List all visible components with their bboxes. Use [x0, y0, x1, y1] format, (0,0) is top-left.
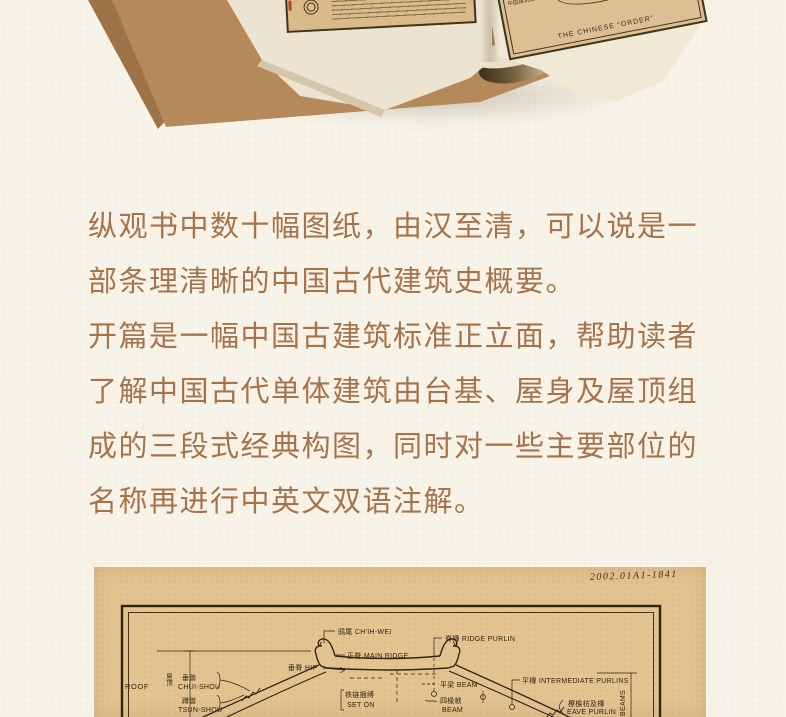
label-tsun-shou-cn: 蹲兽: [182, 696, 197, 705]
label-si-chuan-fu-cn: 四椽栿: [440, 696, 462, 705]
plate-caption-cn: 中国建筑之“ORDER”: [507, 0, 559, 8]
paragraph-line: 开篇是一幅中国古建筑标准正立面，帮助读者: [88, 310, 728, 365]
paragraph-line: 成的三段式经典构图，同时对一些主要部位的: [88, 420, 728, 475]
label-ridge-purlin: 脊槫 RIDGE PURLIN: [445, 634, 515, 643]
blueprint-labels: 鸱尾 CH'IH-WEI 脊槫 RIDGE PURLIN 正脊 MAIN RID…: [125, 627, 629, 716]
label-chui-shou-en: CHUI-SHOU: [178, 684, 220, 691]
label-set-on-cn: 铁链捆缚: [345, 690, 374, 699]
label-main-ridge: 正脊 MAIN RIDGE: [347, 651, 408, 660]
label-eave-purlin-cn: 橑檐枋及槫: [568, 699, 605, 708]
label-chih-wei: 鸱尾 CH'IH-WEI: [338, 627, 392, 636]
label-tsun-shou-en: TSUN-SHOU: [178, 707, 222, 714]
label-roof: ROOF: [125, 682, 149, 691]
article-text: 纵观书中数十幅图纸，由汉至清，可以说是一 部条理清晰的中国古代建筑史概要。 开篇…: [88, 200, 728, 530]
label-ping-liang: 平梁 BEAM: [440, 680, 478, 689]
label-chui-shou-cn: 垂兽: [182, 673, 197, 682]
label-eave-purlin-en: EAVE PURLIN: [567, 709, 616, 716]
paragraph-line: 名称再进行中英文双语注解。: [88, 475, 728, 530]
book-photo[interactable]: 中国建筑之“ORDER” THE CHINESE “ORDER”: [0, 0, 786, 175]
paragraph-line: 纵观书中数十幅图纸，由汉至清，可以说是一: [88, 200, 728, 255]
plate-number: 2002.01A1-1841: [590, 569, 678, 583]
book-gutter-shadow: [480, 0, 500, 62]
paragraph-line: 部条理清晰的中国古代建筑史概要。: [88, 255, 728, 310]
label-hip: 垂脊 HIP: [288, 663, 317, 672]
paragraph-line: 了解中国古代单体建筑由台基、屋身及屋顶组: [88, 365, 728, 420]
label-beams: BEAMS: [620, 690, 627, 716]
label-intermediate-purlins: 平槫 INTERMEDIATE PURLINS: [522, 676, 629, 685]
label-set-on-en: SET ON: [347, 702, 375, 709]
label-roof-cn: 屋顶: [165, 673, 173, 688]
label-si-chuan-fu-en: BEAM: [442, 707, 463, 714]
plate-caption-lines: [331, 0, 466, 23]
red-collation-mark: [288, 1, 292, 11]
plan-ellipse-sketch: [553, 0, 651, 12]
roof-blueprint-image[interactable]: 2002.01A1-1841: [94, 567, 706, 717]
seal-stamp-icon: [303, 0, 319, 15]
